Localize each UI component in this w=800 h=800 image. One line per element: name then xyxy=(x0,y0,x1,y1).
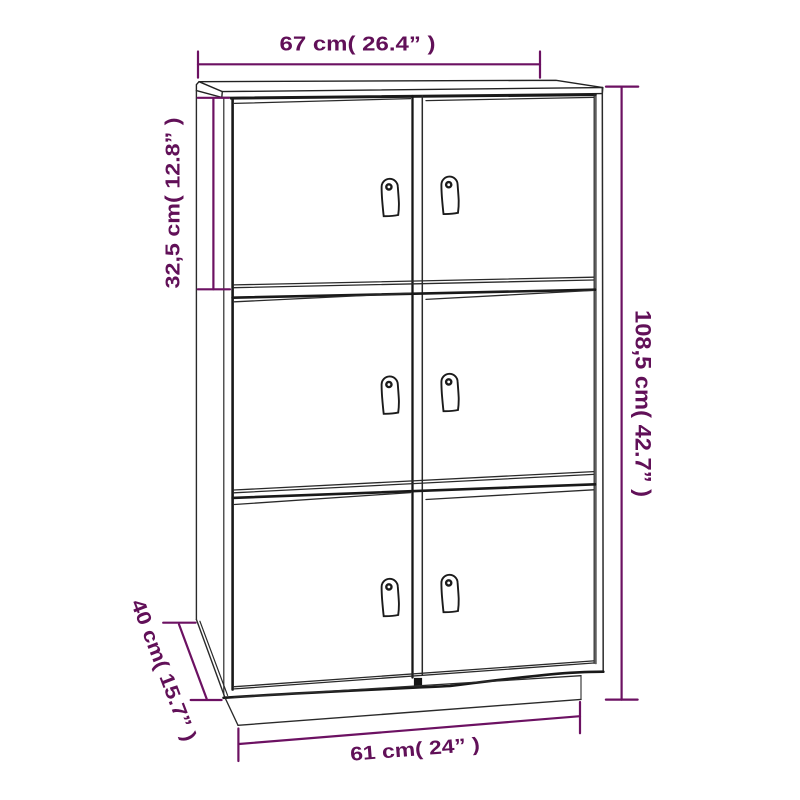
svg-text:32,5 cm( 12.8” ): 32,5 cm( 12.8” ) xyxy=(163,118,185,289)
svg-text:67 cm( 26.4” ): 67 cm( 26.4” ) xyxy=(280,33,436,56)
svg-text:108,5 cm( 42.7” ): 108,5 cm( 42.7” ) xyxy=(631,310,656,497)
